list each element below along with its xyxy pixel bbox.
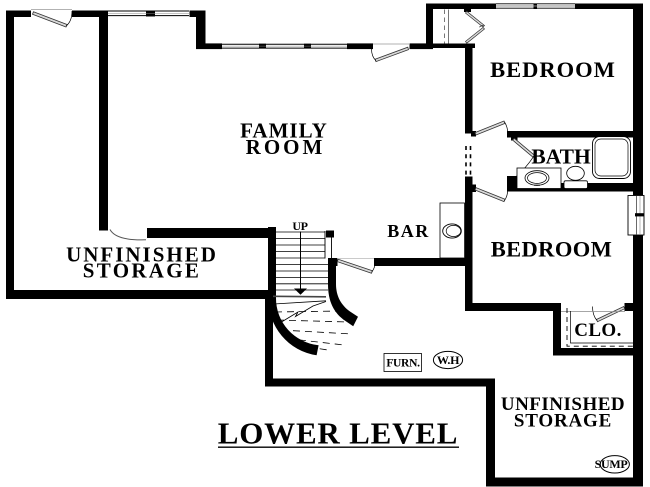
svg-text:BAR: BAR [387,221,430,241]
svg-text:SUMP: SUMP [595,457,628,471]
svg-text:FURN.: FURN. [386,357,420,369]
svg-text:STORAGE: STORAGE [514,411,612,432]
svg-text:BEDROOM: BEDROOM [490,57,616,82]
svg-text:STORAGE: STORAGE [83,259,201,283]
svg-text:CLO.: CLO. [574,320,622,341]
svg-text:ROOM: ROOM [246,135,326,159]
svg-text:UP: UP [292,219,307,233]
svg-text:BATH: BATH [531,145,591,169]
svg-text:W.H: W.H [437,353,460,367]
svg-text:LOWER LEVEL: LOWER LEVEL [218,416,459,451]
svg-text:BEDROOM: BEDROOM [491,237,613,262]
